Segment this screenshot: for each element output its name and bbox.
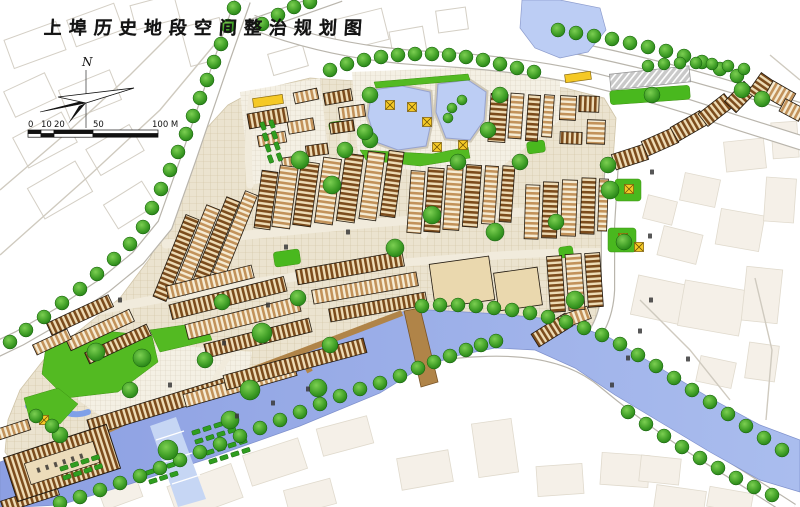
tree [415, 299, 429, 313]
tree [510, 61, 524, 75]
tree [469, 299, 483, 313]
tree [45, 419, 59, 433]
tree [587, 29, 601, 43]
map-title: 上埠历史地段空间整治规划图 [43, 14, 370, 40]
scale-label: 50 [93, 120, 104, 130]
tree [548, 214, 564, 230]
tree [163, 163, 177, 177]
tree [309, 379, 327, 397]
tree [19, 323, 33, 337]
tree [765, 488, 779, 502]
tree [186, 109, 200, 123]
tree [90, 267, 104, 281]
bg-building [741, 266, 782, 323]
bg-building [471, 418, 518, 477]
bg-building [397, 450, 454, 491]
tree [154, 182, 168, 196]
street-label-mark [271, 401, 275, 406]
tree [443, 113, 453, 123]
scale-bar-segment [54, 134, 93, 138]
scale-bar-segment [41, 134, 54, 138]
pavilion [433, 143, 442, 152]
scale-label: 20 [54, 120, 65, 130]
tree [391, 48, 405, 62]
tree [197, 352, 213, 368]
parked-car [242, 447, 251, 454]
tree [93, 483, 107, 497]
tree [595, 328, 609, 342]
tree [408, 47, 422, 61]
tree [631, 348, 645, 362]
tree [566, 291, 584, 309]
pavilion [423, 118, 432, 127]
bg-building [436, 7, 469, 33]
tree [193, 445, 207, 459]
bg-building [707, 486, 754, 507]
tree [523, 306, 537, 320]
tree [623, 36, 637, 50]
parked-car [209, 458, 218, 465]
pavilion [386, 101, 395, 110]
tree [775, 443, 789, 457]
tree [639, 417, 653, 431]
map-canvas: N0102050100 M [0, 0, 800, 507]
tree [644, 87, 660, 103]
bg-building [654, 485, 707, 507]
tree [457, 95, 467, 105]
tree [685, 383, 699, 397]
street-label-mark [306, 387, 310, 392]
tree [512, 154, 528, 170]
tree [87, 343, 105, 361]
tree [657, 429, 671, 443]
tree [739, 419, 753, 433]
tree [393, 369, 407, 383]
tree [37, 310, 51, 324]
street-label-mark [648, 234, 652, 239]
tree [427, 355, 441, 369]
bg-building [268, 44, 309, 75]
tree [480, 122, 496, 138]
tree [357, 124, 373, 140]
scale-label: 100 M [152, 120, 178, 130]
tree [374, 50, 388, 64]
bg-road [770, 55, 800, 80]
tree [754, 91, 770, 107]
scale-bar: 0102050100 M [28, 120, 178, 137]
tree [290, 290, 306, 306]
tree [541, 310, 555, 324]
bg-building [679, 173, 720, 208]
tree [527, 65, 541, 79]
tree [133, 349, 151, 367]
building [611, 144, 648, 170]
pavilion [625, 185, 634, 194]
tree [337, 142, 353, 158]
street-label-mark [346, 230, 350, 235]
tree [642, 60, 654, 72]
scale-bar-segment [28, 134, 41, 138]
tree [171, 145, 185, 159]
bg-building [242, 438, 307, 486]
tree [240, 380, 260, 400]
tree [133, 469, 147, 483]
tree [442, 48, 456, 62]
tree [747, 480, 761, 494]
tree [693, 451, 707, 465]
tree [757, 431, 771, 445]
scale-bar-segment [54, 130, 93, 134]
tree [492, 87, 508, 103]
parked-car [149, 478, 158, 485]
tree [738, 63, 750, 75]
tree [425, 47, 439, 61]
tree [322, 337, 338, 353]
parked-car [231, 451, 240, 458]
tree [373, 376, 387, 390]
tree [362, 87, 378, 103]
bg-building [715, 208, 765, 251]
tree [489, 334, 503, 348]
tree [493, 57, 507, 71]
tree [287, 0, 301, 14]
tree [486, 223, 504, 241]
lawn [526, 140, 545, 154]
tree [577, 321, 591, 335]
tree [353, 382, 367, 396]
tree [600, 157, 616, 173]
street-label-mark [222, 341, 226, 346]
tree [487, 301, 501, 315]
tree [658, 58, 670, 70]
tree [551, 23, 565, 37]
tree [113, 476, 127, 490]
scale-bar-segment [41, 130, 54, 134]
tree [227, 1, 241, 15]
pavilion [459, 141, 468, 150]
scale-bar-segment [28, 130, 41, 134]
tree [605, 32, 619, 46]
bg-building [764, 177, 797, 223]
tree [559, 315, 573, 329]
tree [333, 389, 347, 403]
street-label-mark [686, 357, 690, 362]
street-label-mark [284, 245, 288, 250]
tree [73, 490, 87, 504]
bg-building [643, 195, 678, 226]
tree [323, 176, 341, 194]
bg-building [657, 226, 703, 265]
tree [450, 154, 466, 170]
building [524, 185, 540, 239]
scale-bar-segment [93, 130, 158, 134]
tree [459, 50, 473, 64]
tree [107, 252, 121, 266]
bg-building [316, 416, 373, 457]
tree [721, 407, 735, 421]
parked-car [159, 474, 168, 481]
tree [123, 237, 137, 251]
bg-building [639, 455, 681, 485]
tree [158, 440, 178, 460]
street-label-mark [610, 383, 614, 388]
planning-map-page: N0102050100 M 上埠历史地段空间整治规划图 [0, 0, 800, 507]
tree [433, 298, 447, 312]
street-label-mark [118, 298, 122, 303]
tree [136, 220, 150, 234]
building [560, 132, 582, 145]
tree [703, 395, 717, 409]
tree [293, 405, 307, 419]
scale-label: 10 [41, 120, 52, 130]
building [561, 180, 578, 236]
tree [357, 53, 371, 67]
tree [474, 338, 488, 352]
tree [674, 57, 686, 69]
tree [616, 234, 632, 250]
tree [722, 60, 734, 72]
tree [641, 40, 655, 54]
tree [153, 461, 167, 475]
street-label-mark [266, 303, 270, 308]
tree [200, 73, 214, 87]
tree [667, 371, 681, 385]
tree [505, 303, 519, 317]
tree [179, 127, 193, 141]
tree [411, 361, 425, 375]
tree [214, 294, 230, 310]
tree [193, 91, 207, 105]
tree [659, 44, 673, 58]
tree [613, 337, 627, 351]
street-label-mark [235, 414, 239, 419]
bg-building [283, 478, 336, 507]
pavilion [408, 103, 417, 112]
tree [253, 421, 267, 435]
scale-label: 0 [28, 120, 33, 130]
tree [443, 349, 457, 363]
tree [233, 429, 247, 443]
tree [273, 413, 287, 427]
tree [313, 397, 327, 411]
north-label: N [81, 55, 93, 69]
street-label-mark [168, 383, 172, 388]
tree [459, 343, 473, 357]
tree [423, 206, 441, 224]
building [579, 96, 600, 113]
pavilion [635, 243, 644, 252]
building [587, 120, 606, 145]
tree [447, 103, 457, 113]
building [559, 96, 576, 121]
tree [323, 63, 337, 77]
street-label-mark [638, 329, 642, 334]
tree [734, 82, 750, 98]
tree [451, 298, 465, 312]
tree [55, 296, 69, 310]
tree [601, 181, 619, 199]
building [585, 253, 604, 308]
street-label-mark [650, 170, 654, 175]
tree [291, 151, 309, 169]
bg-building [745, 342, 780, 382]
parked-car [220, 454, 229, 461]
tree [207, 55, 221, 69]
bg-building [536, 463, 584, 496]
street-label-mark [626, 356, 630, 361]
tree [711, 461, 725, 475]
bg-building [677, 280, 746, 336]
building [580, 178, 596, 234]
bg-building [27, 161, 92, 219]
street [248, 96, 252, 185]
scale-bar-segment [93, 134, 158, 138]
bg-building [724, 138, 767, 172]
tree [706, 58, 718, 70]
tree [122, 382, 138, 398]
tree [252, 323, 272, 343]
tree [386, 239, 404, 257]
tree [340, 57, 354, 71]
building [508, 93, 524, 139]
tree [476, 53, 490, 67]
tree [675, 440, 689, 454]
tree [621, 405, 635, 419]
tree [29, 409, 43, 423]
tree [690, 57, 702, 69]
tree [213, 437, 227, 451]
building [494, 267, 543, 311]
tree [649, 359, 663, 373]
tree [145, 201, 159, 215]
street-label-mark [649, 298, 653, 303]
tree [729, 471, 743, 485]
tree [569, 26, 583, 40]
tree [3, 335, 17, 349]
tree [73, 282, 87, 296]
